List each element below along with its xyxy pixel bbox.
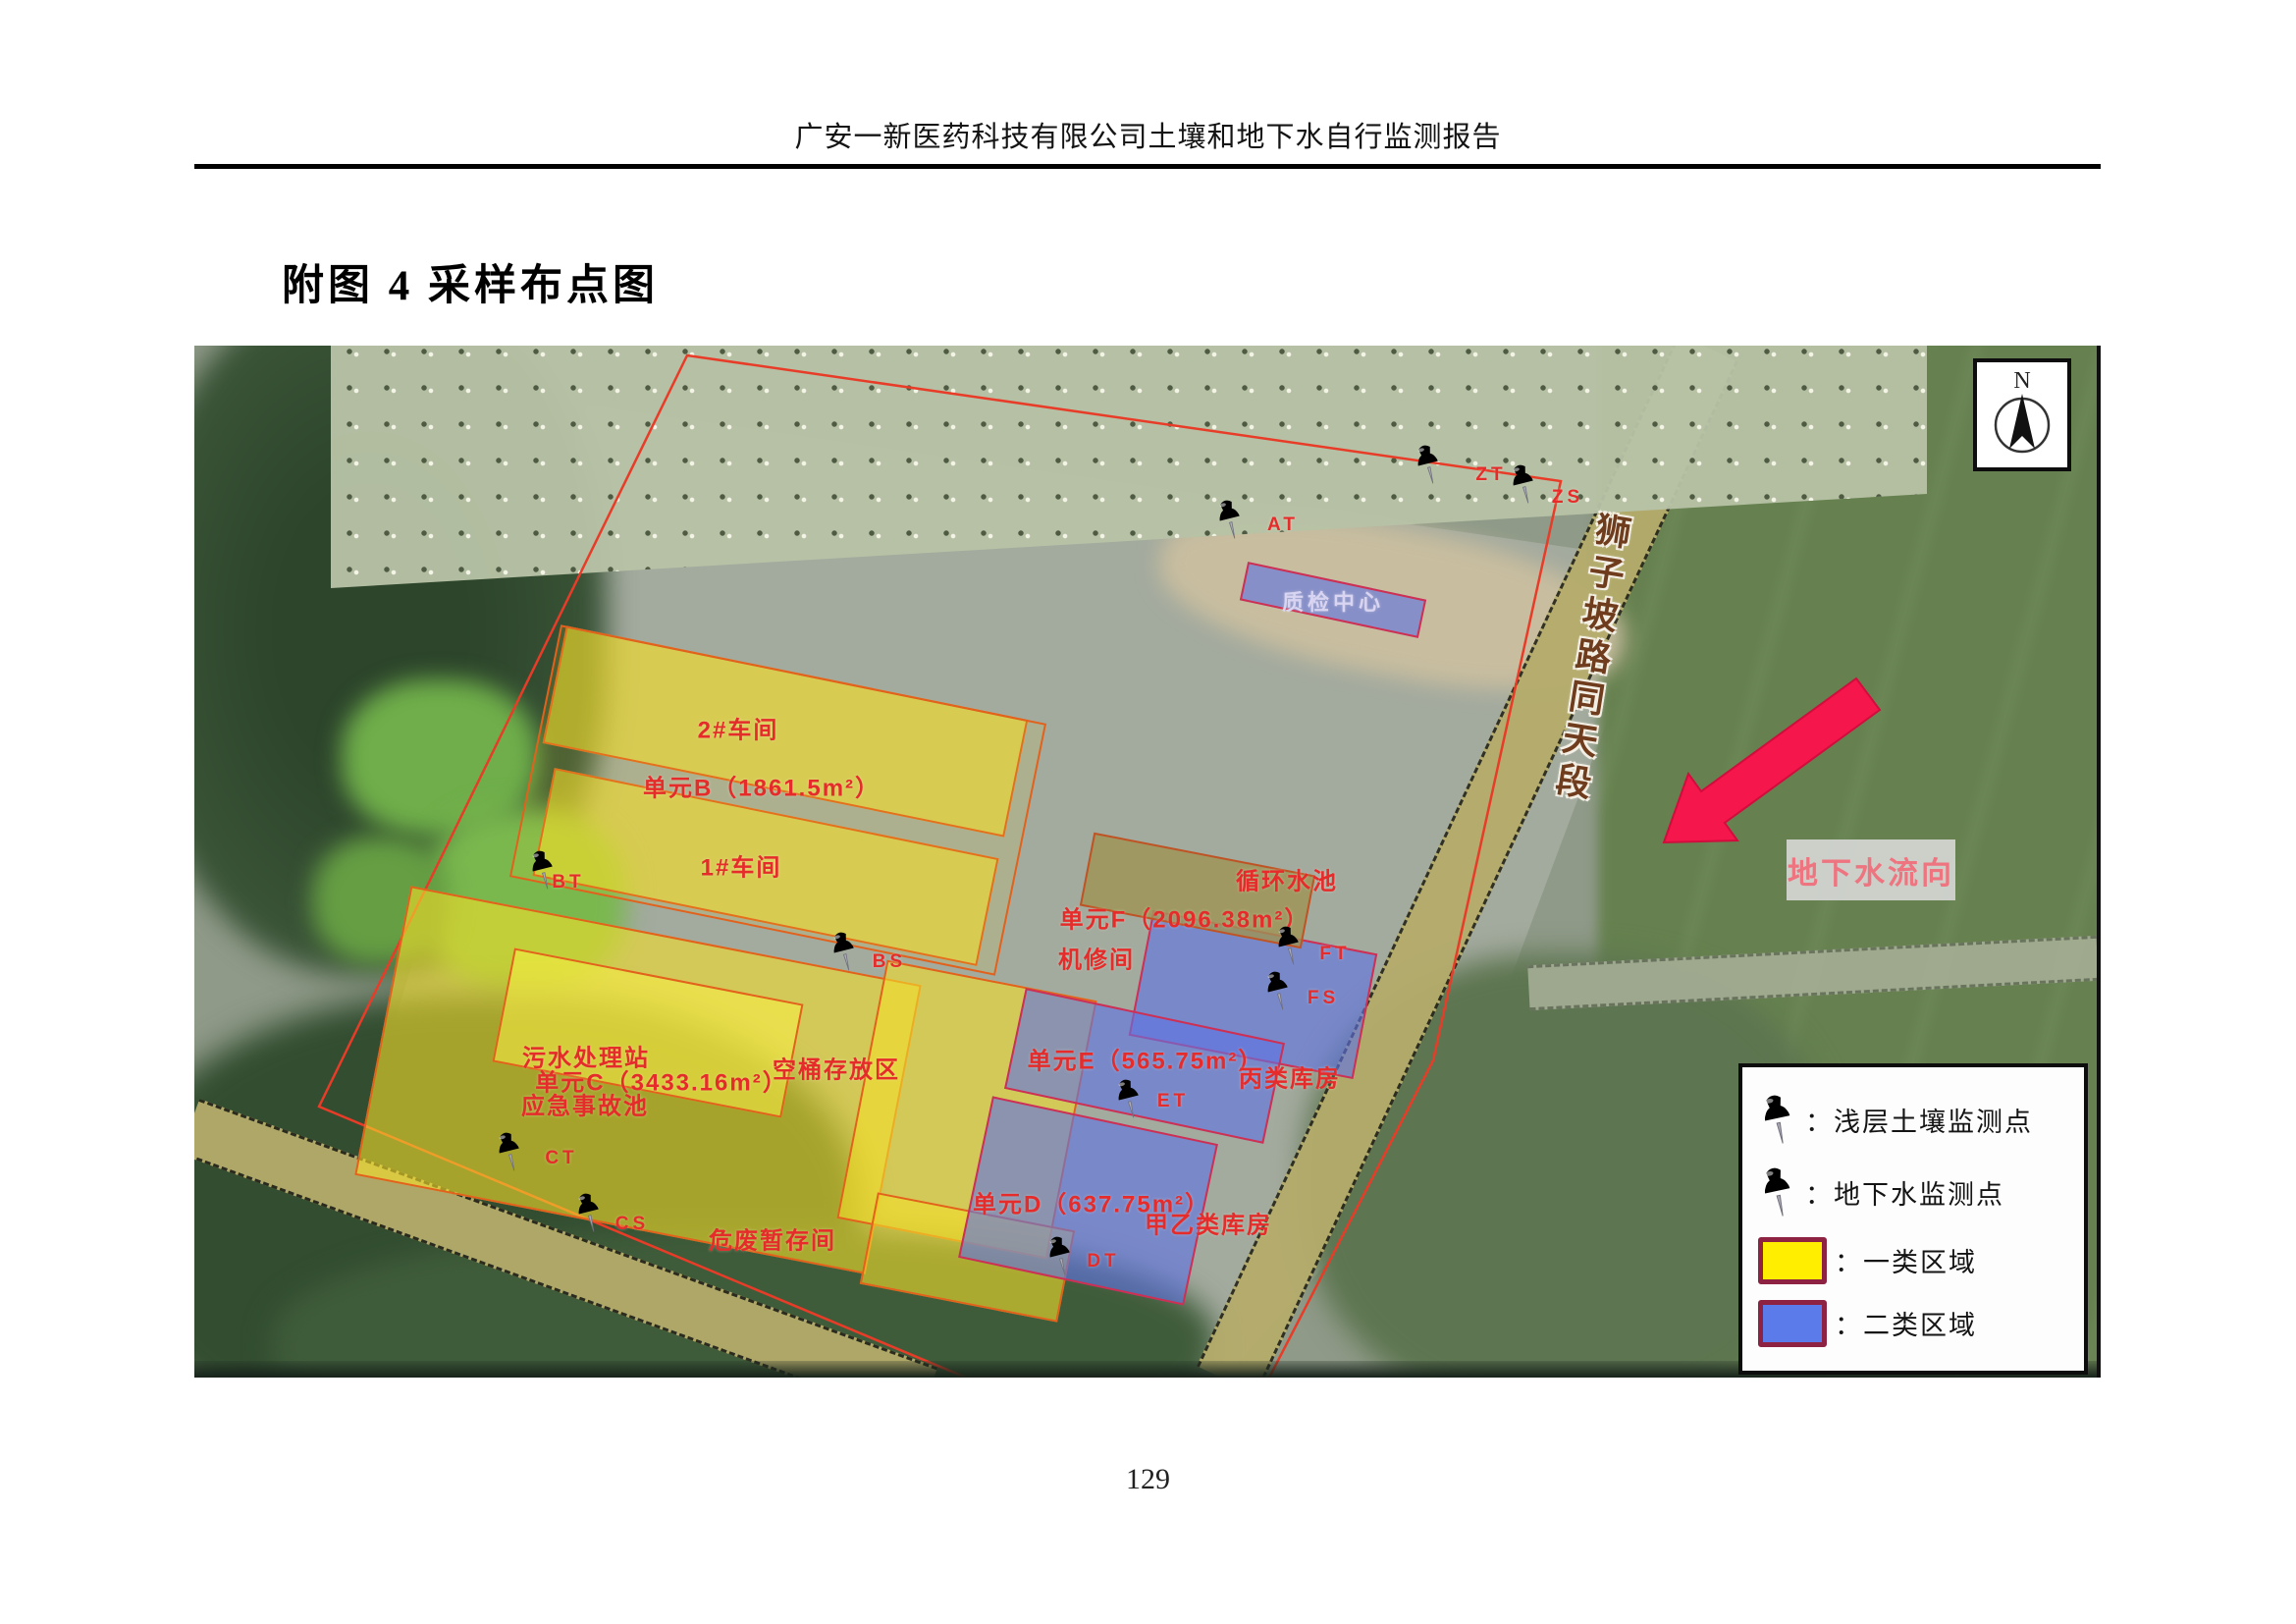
groundwater-pin-icon — [1752, 1161, 1802, 1224]
north-arrow-icon: N — [1977, 362, 2067, 467]
page-number: 129 — [0, 1463, 2296, 1496]
label-workshop-2: 2#车间 — [698, 711, 779, 745]
label-class-c-warehouse: 丙类库房 — [1239, 1059, 1341, 1094]
pin-label-DT: DT — [1087, 1251, 1119, 1272]
legend-row-soil: ：浅层土壤监测点 — [1758, 1091, 2068, 1148]
legend-class2-label: ：二类区域 — [1835, 1304, 1977, 1342]
legend-class1-label: ：一类区域 — [1835, 1241, 1977, 1279]
label-qc-center: 质检中心 — [1282, 585, 1384, 617]
label-unit-b: 单元B（1861.5m²） — [643, 769, 881, 803]
report-page: 广安一新医药科技有限公司土壤和地下水自行监测报告 附图 4 采样布点图 — [0, 0, 2296, 1624]
legend-soil-label: ：浅层土壤监测点 — [1805, 1101, 2033, 1139]
compass-box: N — [1973, 358, 2071, 471]
figure-title: 附图 4 采样布点图 — [282, 251, 659, 312]
pin-label-FT: FT — [1319, 944, 1350, 965]
pin-label-ZT: ZT — [1475, 464, 1506, 486]
pin-label-BT: BT — [552, 872, 584, 893]
groundwater-flow-label: 地下水流向 — [1787, 839, 1955, 900]
class2-area-swatch — [1758, 1300, 1827, 1347]
label-emergency-pool: 应急事故池 — [521, 1087, 649, 1121]
pin-label-BS: BS — [873, 951, 906, 973]
report-header: 广安一新医药科技有限公司土壤和地下水自行监测报告 — [0, 114, 2296, 155]
label-empty-barrel-area: 空桶存放区 — [773, 1051, 900, 1085]
pin-label-AT: AT — [1267, 514, 1299, 536]
pin-label-CS: CS — [615, 1214, 649, 1235]
pin-label-CT: CT — [545, 1148, 577, 1169]
groundwater-flow-arrow-icon — [1645, 675, 1891, 861]
label-hazwaste-room: 危废暂存间 — [709, 1221, 836, 1256]
pin-label-ZS: ZS — [1552, 487, 1583, 509]
pin-label-ET: ET — [1157, 1091, 1189, 1112]
label-circulating-pool: 循环水池 — [1236, 862, 1338, 896]
pin-label-FS: FS — [1308, 988, 1339, 1009]
class1-area-swatch — [1758, 1237, 1827, 1284]
label-class-ab-warehouse: 甲乙类库房 — [1145, 1206, 1272, 1240]
label-unit-e: 单元E（565.75m²） — [1028, 1042, 1264, 1076]
map-legend: ：浅层土壤监测点 ：地下水监测点 ：一类区域 ：二类区域 — [1738, 1063, 2088, 1375]
label-workshop-1: 1#车间 — [701, 848, 782, 883]
site-map: 地下水流向 狮子坡路同天段 N ：浅层土壤监测点 ：地下水监测点 ：一类区 — [194, 346, 2101, 1378]
legend-row-class2: ：二类区域 — [1758, 1300, 2068, 1347]
compass-north-letter: N — [2013, 368, 2030, 394]
legend-groundwater-label: ：地下水监测点 — [1805, 1173, 2004, 1212]
legend-row-class1: ：一类区域 — [1758, 1237, 2068, 1284]
label-repair-room: 机修间 — [1058, 941, 1135, 975]
legend-row-groundwater: ：地下水监测点 — [1758, 1164, 2068, 1220]
soil-pin-icon — [1752, 1088, 1802, 1152]
header-rule — [194, 164, 2101, 169]
